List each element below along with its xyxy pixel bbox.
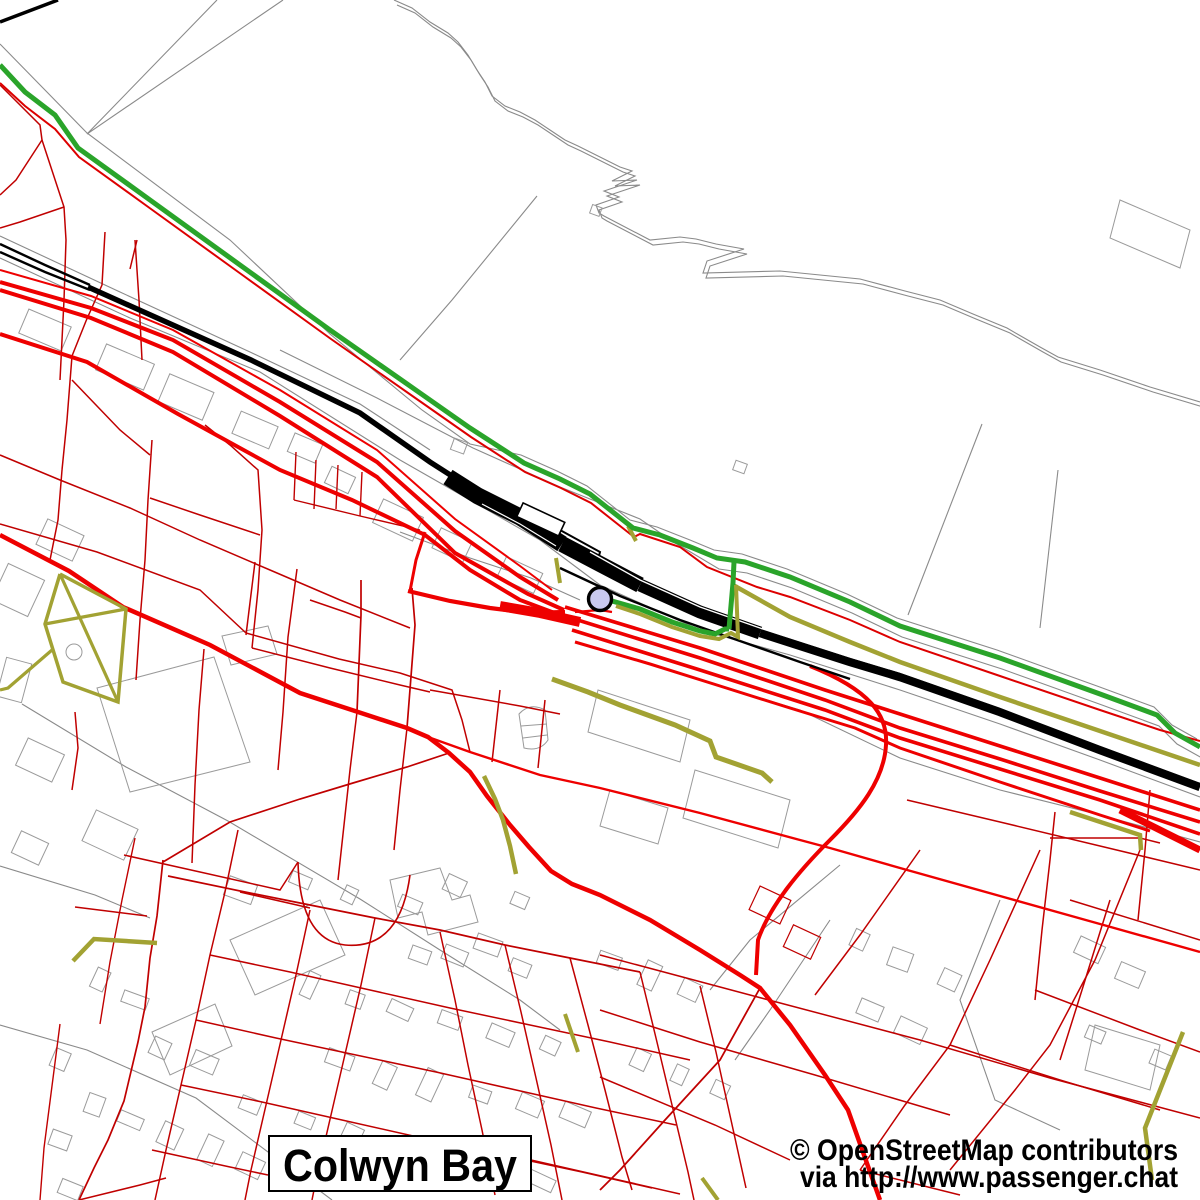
svg-text:Colwyn Bay: Colwyn Bay [283,1140,517,1191]
svg-text:via http://www.passenger.chat: via http://www.passenger.chat [800,1161,1178,1194]
